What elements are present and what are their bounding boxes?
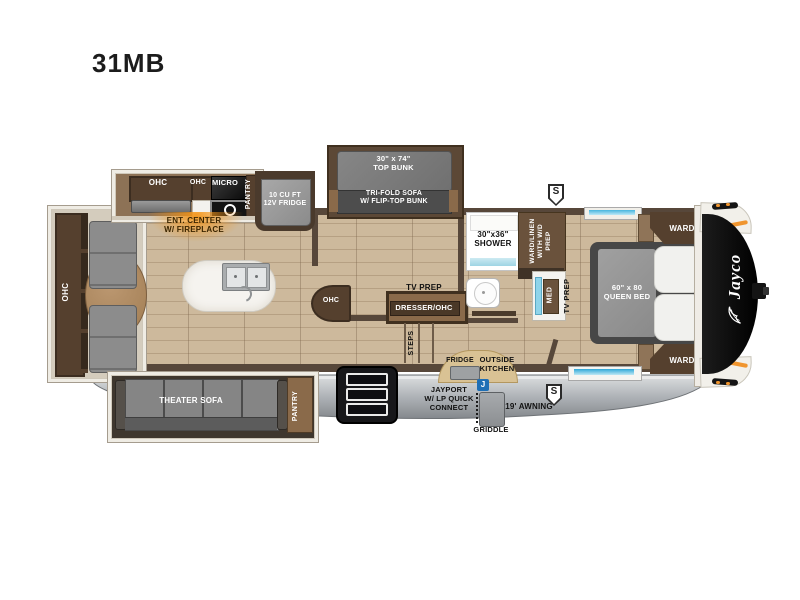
jayport-icon-letter: J [481, 380, 485, 389]
top-bunk-label: 30" x 74" TOP BUNK [337, 155, 450, 173]
ent-center-label: ENT. CENTER W/ FIREPLACE [146, 216, 242, 235]
page-title: 31MB [92, 48, 182, 79]
bath-threshold [472, 311, 516, 316]
cap-marker-dot [716, 381, 720, 384]
cap-marker-dot [726, 382, 730, 385]
speaker-marker-bottom: S [546, 384, 562, 406]
speaker-marker-top: S [548, 184, 564, 206]
bed-tvprep-label: TV PREP [560, 274, 574, 318]
brand-logo-text: Jayco [725, 254, 745, 300]
living-pantry-label: PANTRY [284, 378, 308, 434]
entry-step [346, 373, 388, 386]
entry-window [574, 369, 634, 375]
queen-bed-label: 60" x 80 QUEEN BED [596, 284, 658, 302]
theater-sofa-front [125, 417, 277, 430]
brand-logo-group: Jayco [720, 215, 750, 365]
jayport-icon: J [477, 379, 489, 391]
dresser-label: DRESSER/OHC [390, 304, 458, 313]
rear-ohc-label: OHC [53, 211, 79, 373]
sink-drain-left [234, 275, 237, 278]
jayport-label: JAYPORT W/ LP QUICK CONNECT [416, 386, 482, 413]
kitchen-ohc-large-label: OHC [128, 178, 188, 187]
cap-marker-dot [716, 204, 720, 207]
shower-top-ledge [470, 215, 518, 231]
toilet [466, 278, 500, 308]
kitchen-micro-label: MICRO [207, 179, 243, 188]
rear-seat-top [89, 221, 137, 289]
speaker-letter: S [548, 186, 564, 197]
outside-kitchen-label: OUTSIDE KITCHEN [476, 356, 518, 374]
med-label: MED [544, 279, 558, 312]
cap-marker-dot [726, 203, 730, 206]
entry-step [346, 403, 388, 416]
trifold-sofa-label: TRI-FOLD SOFA W/ FLIP-TOP BUNK [334, 190, 454, 207]
shower-label: 30"x36" SHOWER [464, 230, 522, 249]
kitchen-ohc-small-label: OHC [188, 179, 208, 187]
speaker-letter: S [546, 386, 562, 397]
ward-linen-label: WARD/LINEN WITH W/D PREP [518, 212, 564, 270]
outside-fridge-label: FRIDGE [442, 357, 478, 365]
vanity-sink-blue [535, 277, 542, 315]
sink-drain-right [255, 275, 258, 278]
lp-connect-dotted-line [476, 393, 478, 423]
toilet-seat [474, 282, 497, 305]
hitch-pin-tip [763, 287, 769, 295]
bath-bottom-wall [462, 318, 518, 323]
steps-label: STEPS [404, 322, 420, 364]
interior-steps-lines [432, 323, 434, 363]
bunk-ohc-label: OHC [316, 297, 346, 305]
floorplan-canvas: 31MB OHC [0, 0, 800, 600]
bedroom-window [589, 210, 635, 215]
griddle-label: GRIDDLE [466, 426, 516, 435]
entry-step [346, 388, 388, 401]
eagle-icon [724, 304, 746, 326]
shower-pan-blue [470, 258, 516, 266]
toilet-flush-dot [482, 291, 485, 294]
fridge-label: 10 CU FT 12V FRIDGE [258, 192, 312, 209]
theater-sofa-label: THEATER SOFA [132, 396, 250, 405]
rear-seat-bottom [89, 305, 137, 373]
entry-steps [336, 366, 398, 424]
